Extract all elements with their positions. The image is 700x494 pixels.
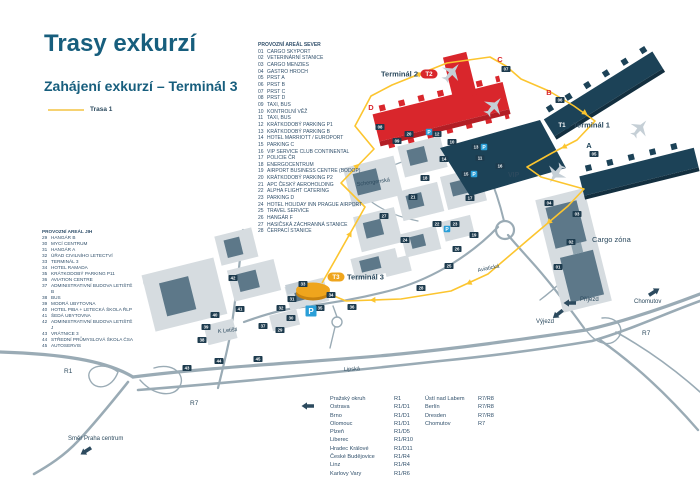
map-badge-10: 10: [448, 139, 457, 145]
svg-text:07: 07: [504, 67, 509, 72]
map-badge-36: 36: [348, 304, 357, 310]
routes-table-right: Ústí nad LabemR7/R8BerlínR7/R8DresdenR7/…: [425, 395, 535, 428]
svg-text:11: 11: [478, 156, 483, 161]
list-item: 22ALPHA FLIGHT CATERING: [258, 188, 390, 195]
parking-icon: P: [426, 129, 433, 136]
svg-text:37: 37: [261, 324, 266, 329]
list-item: 12KRÁTKODOBÝ PARKING P1: [258, 122, 390, 129]
list-item: 42ADMINISTRATIVNÍ BUDOVA LETIŠTĚ J: [42, 319, 142, 331]
map-badge-44: 44: [215, 358, 224, 364]
map-badge-01: 01: [554, 264, 563, 270]
map-label: Lipská: [344, 366, 361, 373]
svg-text:30: 30: [289, 316, 294, 321]
list-item: 09TAXI, BUS: [258, 102, 390, 109]
map-badge-42: 42: [229, 275, 238, 281]
svg-text:33: 33: [301, 282, 306, 287]
map-badge-20: 20: [405, 131, 414, 137]
map-badge-17: 17: [466, 195, 475, 201]
route-row: České BudějoviceR1/R4: [330, 453, 460, 461]
list-item: 13KRÁTKODOBÝ PARKING B: [258, 129, 390, 136]
page-title: Trasy exkurzí: [44, 30, 274, 58]
route-row: PlzeňR1/D5: [330, 428, 460, 436]
list-item: 07PRST C: [258, 89, 390, 96]
map-badge-39: 39: [202, 324, 211, 330]
route-line-swatch: [48, 109, 84, 111]
list-item: 10KONTROLNÍ VĚŽ: [258, 109, 390, 116]
list-item: 28ČERPACÍ STANICE: [258, 228, 390, 235]
map-badge-07: 07: [502, 66, 511, 72]
svg-text:P: P: [308, 307, 314, 316]
map-label: R7: [642, 330, 651, 337]
legend: Trasa 1: [48, 106, 112, 113]
pier-letter-c: C: [497, 55, 503, 64]
map-label: Směr Praha centrum: [68, 436, 123, 442]
svg-text:32: 32: [279, 306, 284, 311]
map-badge-23: 23: [451, 221, 460, 227]
svg-text:03: 03: [575, 212, 580, 217]
map-badge-12: 12: [433, 131, 442, 137]
list-item: 37ADMINISTRATIVNÍ BUDOVA LETIŠTĚ B: [42, 283, 142, 295]
map-badge-35: 35: [316, 305, 325, 311]
list-item: 14HOTEL MARRIOTT / EUROPORT: [258, 135, 390, 142]
svg-text:45: 45: [256, 357, 261, 362]
map-badge-38: 38: [198, 337, 207, 343]
list-item: 08PRST D: [258, 95, 390, 102]
map-badge-24: 24: [401, 237, 410, 243]
map-badge-06: 06: [556, 97, 565, 103]
svg-text:29: 29: [278, 328, 283, 333]
svg-text:15: 15: [464, 172, 469, 177]
header: Trasy exkurzí Zahájení exkurzí – Terminá…: [44, 30, 274, 94]
route-row: Hradec KrálovéR1/D11: [330, 445, 460, 453]
map-label: Cargo zóna: [592, 235, 632, 244]
svg-text:Terminál 1: Terminál 1: [573, 121, 610, 130]
map-badge-45: 45: [254, 356, 263, 362]
map-badge-30: 30: [287, 315, 296, 321]
page-subtitle: Zahájení exkurzí – Terminál 3: [44, 78, 274, 94]
map-badge-04: 04: [545, 200, 554, 206]
map-poster: VIPCargo zónaSchengenskáAviatickáLipskáK…: [0, 0, 700, 494]
map-badge-02: 02: [567, 239, 576, 245]
svg-text:40: 40: [213, 313, 218, 318]
map-label: Příjezd: [580, 297, 599, 303]
map-badge-03: 03: [573, 211, 582, 217]
svg-text:42: 42: [231, 276, 236, 281]
svg-text:23: 23: [453, 222, 458, 227]
svg-text:T2: T2: [425, 71, 433, 78]
svg-text:34: 34: [329, 293, 334, 298]
svg-text:12: 12: [435, 132, 440, 137]
map-badge-31: 31: [288, 296, 297, 302]
list-item: 17POLICIE ČR: [258, 155, 390, 162]
route-row: Ústí nad LabemR7/R8: [425, 395, 535, 403]
map-badge-37: 37: [259, 323, 268, 329]
route-row: BerlínR7/R8: [425, 403, 535, 411]
legend-list-north: PROVOZNÍ AREÁL SEVER01CARGO SKYPORT02VET…: [258, 42, 390, 235]
map-badge-09: 09: [393, 138, 402, 144]
svg-text:13: 13: [474, 145, 479, 150]
map-badge-28: 28: [417, 285, 426, 291]
svg-text:19: 19: [472, 233, 477, 238]
list-item: 11TAXI, BUS: [258, 115, 390, 122]
svg-text:25: 25: [447, 264, 452, 269]
list-item: 02VETERINÁRNÍ STANICE: [258, 55, 390, 62]
list-item: 45AUTOSERVIS: [42, 343, 142, 349]
route-row: LinzR1/R4: [330, 461, 460, 469]
map-label: VIP: [508, 172, 520, 179]
building-round: [143, 277, 153, 287]
svg-text:38: 38: [200, 338, 205, 343]
svg-text:14: 14: [442, 157, 447, 162]
list-item: 23PARKING D: [258, 195, 390, 202]
route-row: LiberecR1/R10: [330, 436, 460, 444]
map-badge-13: 13: [472, 144, 481, 150]
list-item: 03CARGO MENZIES: [258, 62, 390, 69]
map-badge-11: 11: [476, 155, 485, 161]
pier-letter-a: A: [586, 141, 592, 150]
svg-text:31: 31: [290, 297, 295, 302]
parking-icon: P: [306, 306, 317, 317]
list-item: 04GASTRO HROCH: [258, 69, 390, 76]
list-item: 24HOTEL HOLIDAY INN PRAGUE AIRPORT: [258, 202, 390, 209]
svg-text:01: 01: [556, 265, 561, 270]
svg-text:20: 20: [407, 132, 412, 137]
svg-text:02: 02: [569, 240, 574, 245]
map-badge-41: 41: [236, 306, 245, 312]
svg-text:26: 26: [455, 247, 460, 252]
svg-text:T1: T1: [558, 122, 566, 129]
svg-text:44: 44: [217, 359, 222, 364]
list-item: 15PARKING C: [258, 142, 390, 149]
map-badge-18: 18: [421, 175, 430, 181]
terminal-label-t3: T3Terminál 3: [328, 273, 384, 282]
map-badge-14: 14: [440, 156, 449, 162]
map-badge-25: 25: [445, 263, 454, 269]
chomutov-arrow-icon: [647, 285, 661, 298]
map-badge-43: 43: [183, 365, 192, 371]
map-label: Výjezd: [536, 319, 554, 325]
map-badge-34: 34: [327, 292, 336, 298]
map-badge-26: 26: [453, 246, 462, 252]
list-item: 21APC ČESKÝ AEROHOLDING: [258, 182, 390, 189]
list-item: 18ENERGOCENTRUM: [258, 162, 390, 169]
svg-text:09: 09: [395, 139, 400, 144]
map-badge-33: 33: [299, 281, 308, 287]
svg-text:Terminál 3: Terminál 3: [347, 273, 384, 282]
svg-text:41: 41: [238, 307, 243, 312]
parking-icon: P: [444, 226, 451, 233]
route-row: Karlovy VaryR1/R6: [330, 470, 460, 478]
map-label: R1: [64, 368, 73, 375]
table-arrow-left-icon: [300, 397, 316, 415]
list-item: 05PRST A: [258, 75, 390, 82]
map-badge-21: 21: [409, 194, 418, 200]
svg-text:05: 05: [592, 152, 597, 157]
svg-text:06: 06: [558, 98, 563, 103]
route-row: ChomutovR7: [425, 420, 535, 428]
svg-text:36: 36: [350, 305, 355, 310]
terminal-label-t1: T1Terminál 1: [554, 121, 610, 130]
pier-letter-b: B: [546, 88, 552, 97]
svg-text:28: 28: [419, 286, 424, 291]
svg-text:22: 22: [435, 222, 440, 227]
legend-label: Trasa 1: [90, 106, 112, 113]
list-header: PROVOZNÍ AREÁL SEVER: [258, 42, 390, 49]
map-label: R7: [190, 400, 199, 407]
legend-list-south: PROVOZNÍ AREÁL JIH29HANGÁR B30MYCÍ CENTR…: [42, 229, 142, 349]
map-badge-32: 32: [277, 305, 286, 311]
map-badge-40: 40: [211, 312, 220, 318]
svg-text:10: 10: [450, 140, 455, 145]
map-label: Chomutov: [634, 299, 661, 305]
svg-text:04: 04: [547, 201, 552, 206]
map-badge-19: 19: [470, 232, 479, 238]
svg-text:16: 16: [498, 164, 503, 169]
svg-text:43: 43: [185, 366, 190, 371]
svg-text:18: 18: [423, 176, 428, 181]
list-item: 26HANGÁR F: [258, 215, 390, 222]
map-badge-22: 22: [433, 221, 442, 227]
map-badge-29: 29: [276, 327, 285, 333]
svg-text:T3: T3: [332, 274, 340, 281]
list-item: 20KRÁTKODOBÝ PARKING P2: [258, 175, 390, 182]
parking-icon: P: [471, 171, 478, 178]
map-badge-15: 15: [462, 171, 471, 177]
route-row: DresdenR7/R8: [425, 412, 535, 420]
svg-text:17: 17: [468, 196, 473, 201]
map-badge-16: 16: [496, 163, 505, 169]
svg-text:35: 35: [318, 306, 323, 311]
praha-arrow-icon: [79, 445, 93, 458]
list-item: 06PRST B: [258, 82, 390, 89]
svg-text:39: 39: [204, 325, 209, 330]
svg-text:21: 21: [411, 195, 416, 200]
map-badge-05: 05: [590, 151, 599, 157]
parking-icon: P: [481, 144, 488, 151]
svg-text:24: 24: [403, 238, 408, 243]
